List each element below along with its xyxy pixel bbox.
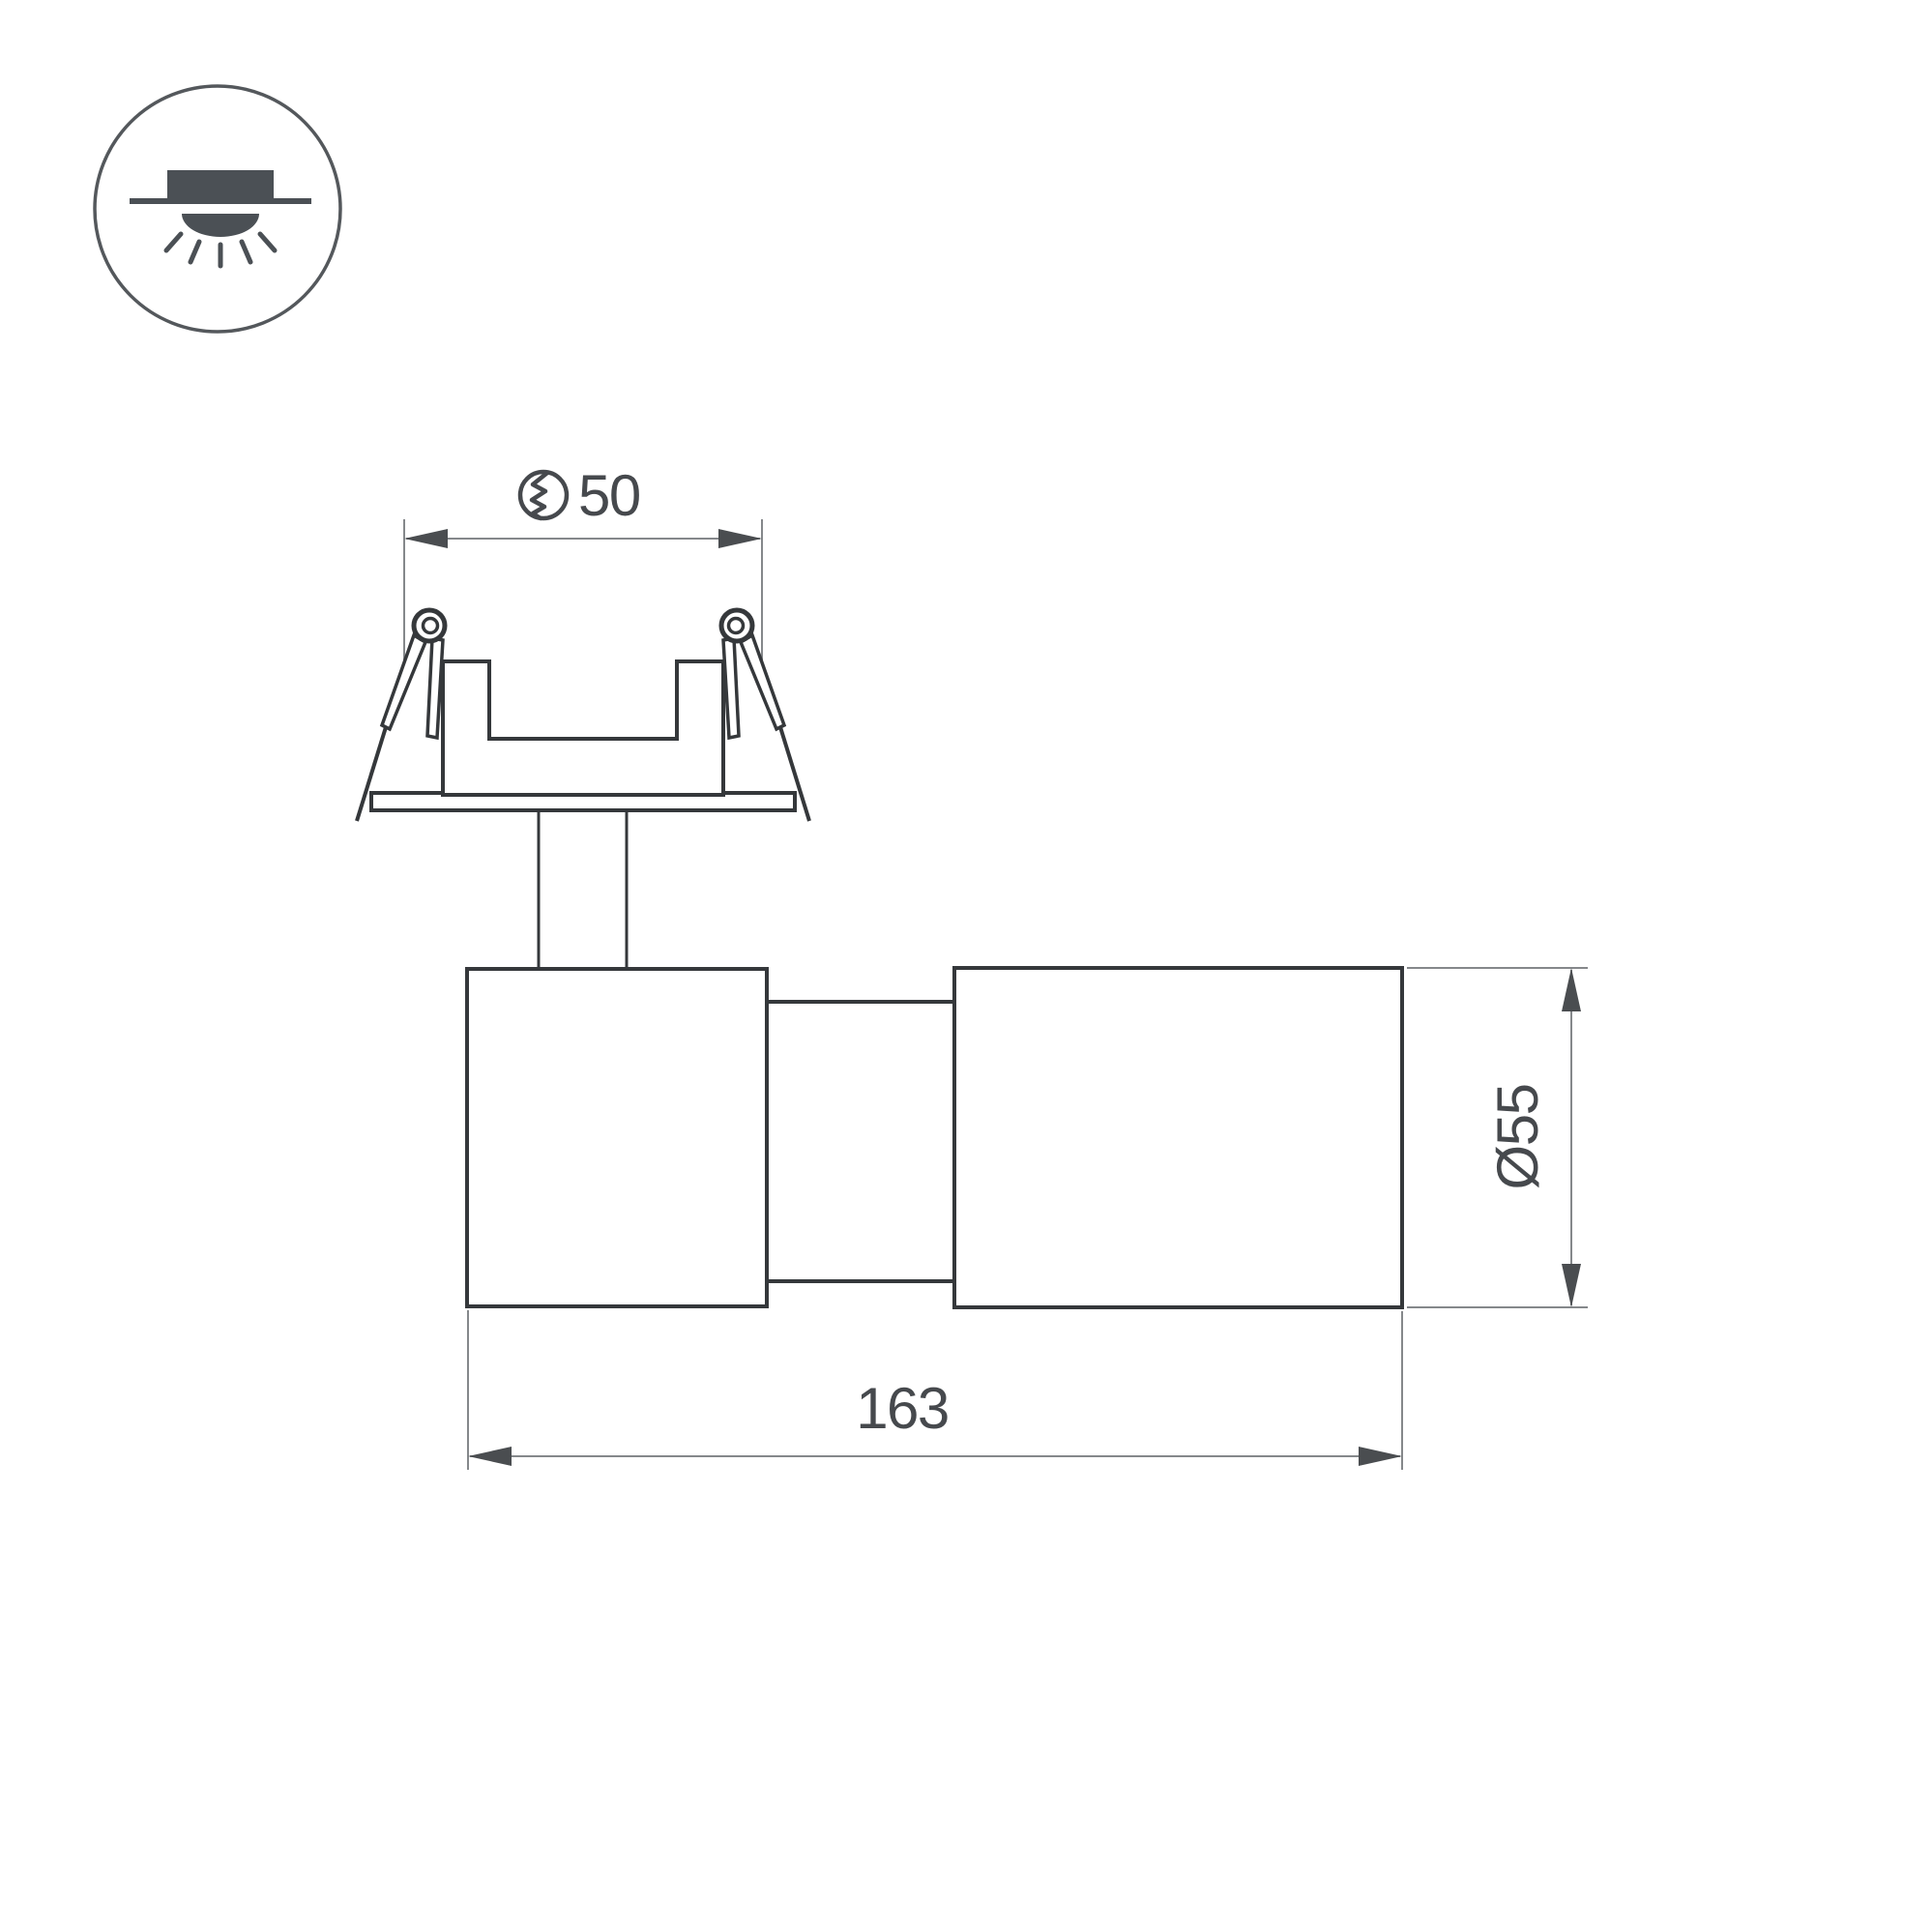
arrow-right-icon [1359, 1447, 1402, 1466]
arrow-right-icon [718, 529, 762, 548]
diameter-dimension-value: Ø55 [1485, 1085, 1550, 1190]
spring-clip-left [357, 610, 445, 821]
length-dimension-value: 163 [856, 1376, 949, 1441]
clip-pivot-hole-right [729, 619, 744, 633]
clip-pivot-hole-left [424, 619, 438, 633]
cutout-dimension: 50 [404, 463, 762, 687]
ceiling-line-icon [130, 198, 311, 204]
cutout-dimension-value: 50 [578, 463, 640, 528]
diameter-dimension: Ø55 [1407, 968, 1588, 1307]
legend-icon-circle [95, 86, 340, 332]
body-rear-cylinder [467, 969, 767, 1306]
clip-arm-inner-right [723, 638, 739, 738]
recessed-downlight-icon [95, 86, 340, 332]
arrow-left-icon [468, 1447, 512, 1466]
mounting-ring-section [357, 610, 809, 821]
arrow-left-icon [404, 529, 448, 548]
spotlight-body [467, 811, 1402, 1307]
technical-drawing: 50 [0, 0, 1932, 1932]
body-front-cylinder [954, 968, 1402, 1307]
drawing-canvas: 50 [0, 0, 1932, 1932]
stem [539, 811, 627, 968]
spring-clip-right [721, 610, 809, 821]
housing-channel [443, 661, 723, 795]
arrow-top-icon [1562, 968, 1581, 1011]
body-middle-joint [767, 1002, 954, 1281]
length-dimension: 163 [468, 1310, 1402, 1470]
fixture-body-icon [167, 170, 274, 200]
clip-arm-inner-left [427, 638, 443, 738]
cutout-hole-icon [520, 472, 567, 518]
arrow-bottom-icon [1562, 1264, 1581, 1307]
